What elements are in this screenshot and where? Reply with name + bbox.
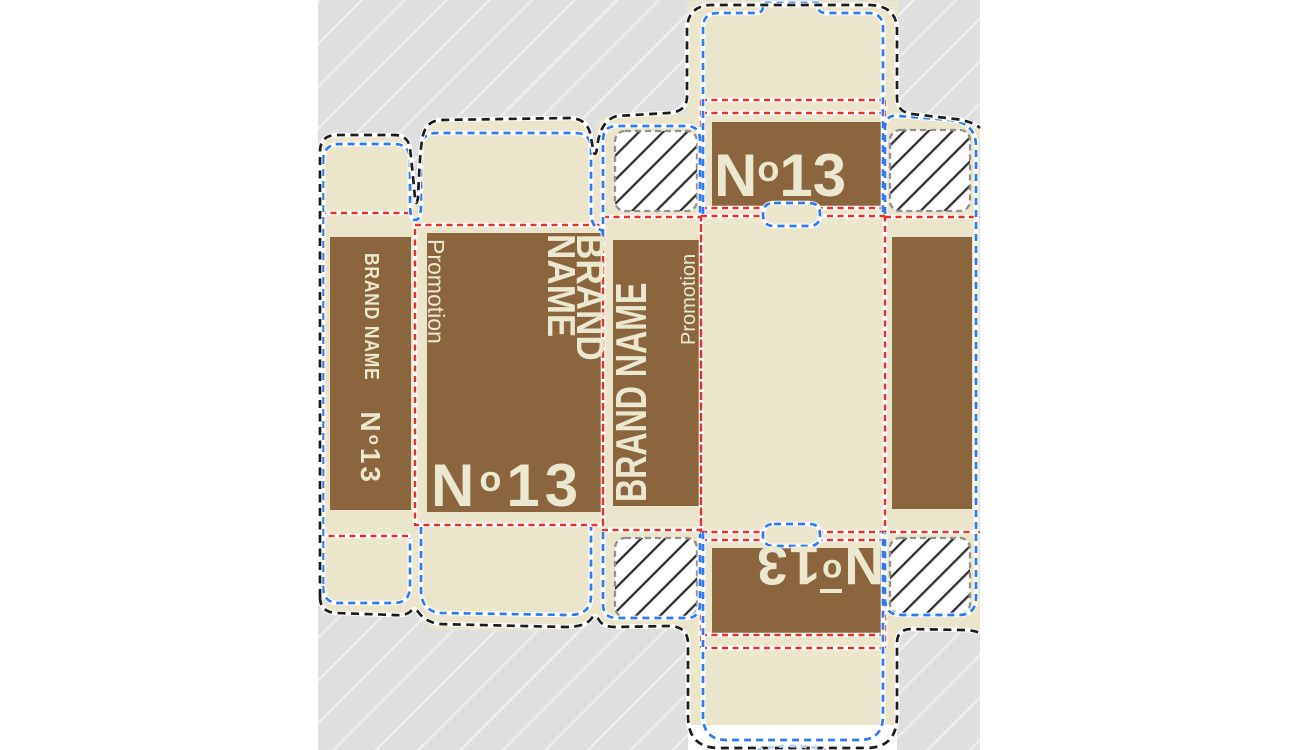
panel-glue-flap-print[interactable]	[892, 237, 972, 509]
front-number-label[interactable]: No13	[431, 456, 583, 516]
glue-area-bottom-left[interactable]	[615, 538, 697, 617]
flap-top-left-side[interactable]	[321, 136, 411, 216]
right-side-brand-label[interactable]: BRAND NAME	[613, 292, 651, 502]
back-bottom-number-label[interactable]: No13	[726, 549, 884, 593]
glue-area-top-right[interactable]	[890, 130, 970, 211]
front-promotion-label[interactable]: Promotion	[428, 239, 449, 369]
glue-area-top-left[interactable]	[615, 131, 697, 211]
back-top-number-label[interactable]: No13	[714, 146, 846, 206]
glue-area-bottom-right[interactable]	[890, 538, 970, 614]
dieline-editor-stage: BRAND NAME No13 Promotion BRAND NAME No1…	[0, 0, 1300, 750]
front-brand-label[interactable]: BRAND NAME	[546, 234, 604, 364]
left-side-number-label[interactable]: No13	[355, 411, 387, 485]
left-side-panel-text[interactable]: BRAND NAME No13	[330, 237, 411, 510]
right-side-promotion-label[interactable]: Promotion	[678, 250, 698, 345]
left-side-brand-label[interactable]: BRAND NAME	[359, 253, 382, 400]
